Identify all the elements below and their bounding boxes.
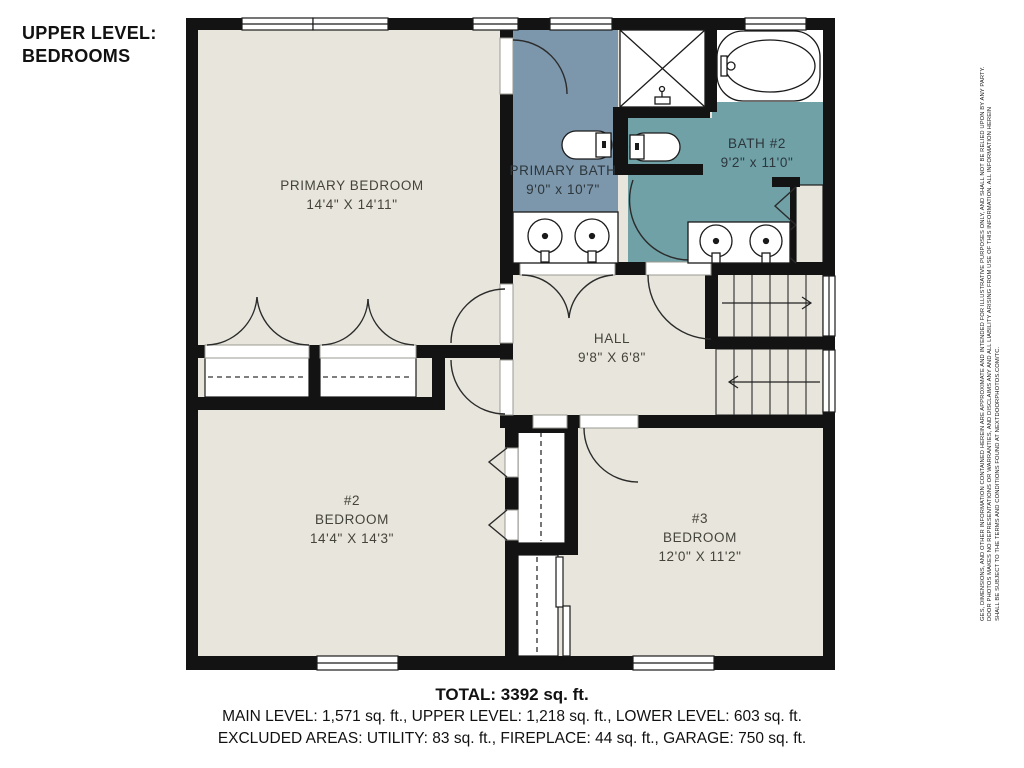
- room-label-bedroom3: #3 BEDROOM 12'0" X 11'2": [658, 509, 741, 566]
- disclaimer-line2: DOOR PHOTOS MAKES NO REPRESENTATIONS OR …: [987, 66, 994, 621]
- room-name: BEDROOM: [310, 510, 394, 529]
- disclaimer-text: GES, DIMENSIONS, AND OTHER INFORMATION C…: [980, 66, 1002, 621]
- excluded-areas: EXCLUDED AREAS: UTILITY: 83 sq. ft., FIR…: [0, 728, 1024, 750]
- total-area: TOTAL: 3392 sq. ft.: [0, 684, 1024, 706]
- title-line2: BEDROOMS: [22, 46, 130, 66]
- room-name: HALL: [578, 329, 646, 348]
- title-line1: UPPER LEVEL:: [22, 23, 157, 43]
- sliding-door: [563, 606, 570, 656]
- room-label-hall: HALL 9'8" X 6'8": [578, 329, 646, 367]
- shower-icon: [620, 30, 705, 107]
- closet-bedroom3: [518, 555, 558, 656]
- room-dims: 9'8" X 6'8": [578, 348, 646, 367]
- disclaimer-line3: SHALL BE SUBJECT TO THE TERMS AND CONDIT…: [995, 66, 1002, 621]
- bathtub-icon: [717, 31, 820, 101]
- floor-plan: [0, 0, 1024, 768]
- bath2-floor-upper: [712, 100, 823, 122]
- room-label-bath2: BATH #2 9'2" x 11'0": [721, 134, 794, 172]
- room-name: BATH #2: [721, 134, 794, 153]
- room-dims: 14'4" X 14'3": [310, 529, 394, 548]
- linen-closet: [796, 185, 823, 263]
- toilet-icon: [630, 133, 680, 161]
- room-dims: 14'4" X 14'11": [280, 195, 424, 214]
- room-dims: 12'0" X 11'2": [658, 547, 741, 566]
- page-title: UPPER LEVEL: BEDROOMS: [22, 22, 157, 68]
- vanity-sink: [688, 222, 790, 263]
- room-label-primary-bath: PRIMARY BATH 9'0" x 10'7": [510, 161, 617, 199]
- room-number: #2: [310, 491, 394, 510]
- room-name: PRIMARY BATH: [510, 161, 617, 180]
- room-label-bedroom2: #2 BEDROOM 14'4" X 14'3": [310, 491, 394, 548]
- room-dims: 9'2" x 11'0": [721, 153, 794, 172]
- toilet-icon: [562, 131, 612, 159]
- room-dims: 9'0" x 10'7": [510, 180, 617, 199]
- vanity-sink: [513, 212, 618, 263]
- disclaimer-line1: GES, DIMENSIONS, AND OTHER INFORMATION C…: [980, 66, 987, 621]
- level-areas: MAIN LEVEL: 1,571 sq. ft., UPPER LEVEL: …: [0, 706, 1024, 728]
- sliding-door: [556, 557, 563, 607]
- room-number: #3: [658, 509, 741, 528]
- room-name: BEDROOM: [658, 528, 741, 547]
- room-label-primary-bedroom: PRIMARY BEDROOM 14'4" X 14'11": [280, 176, 424, 214]
- room-name: PRIMARY BEDROOM: [280, 176, 424, 195]
- area-summary: TOTAL: 3392 sq. ft. MAIN LEVEL: 1,571 sq…: [0, 684, 1024, 750]
